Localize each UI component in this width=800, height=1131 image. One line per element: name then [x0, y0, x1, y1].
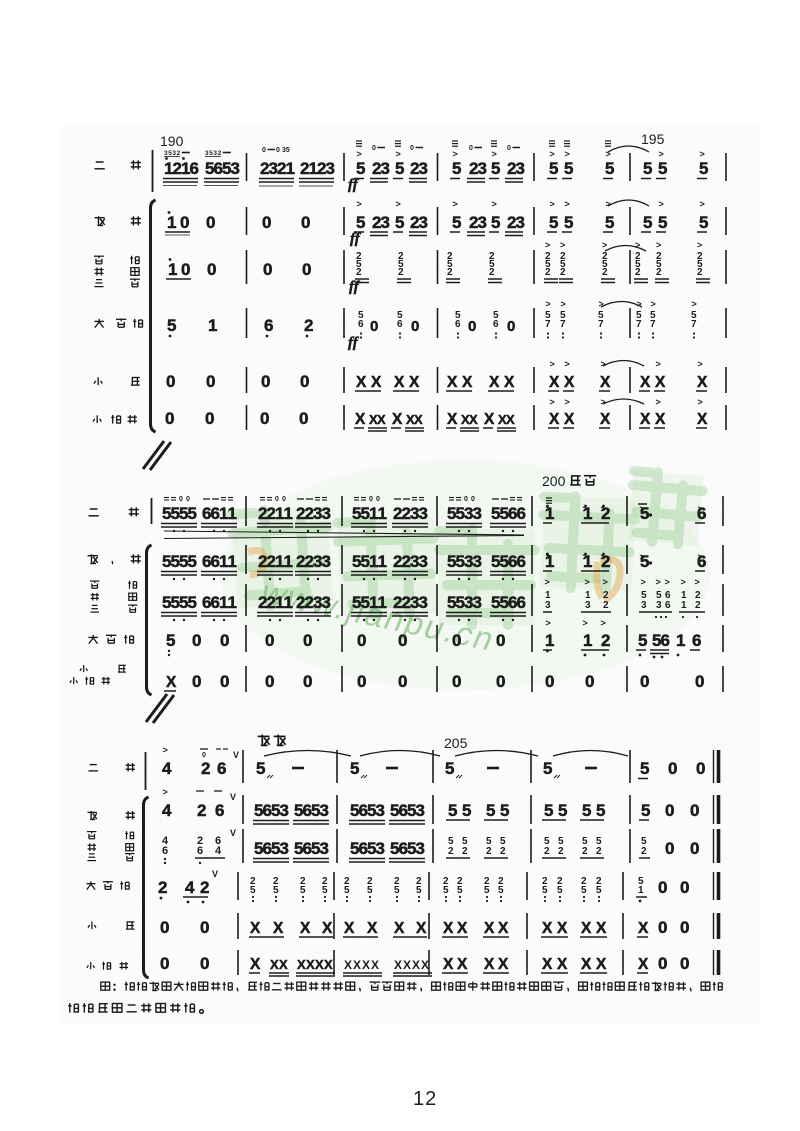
svg-text:>: >	[692, 299, 697, 309]
svg-text:5: 5	[395, 213, 404, 232]
svg-text:6: 6	[517, 593, 526, 612]
svg-text:X: X	[371, 958, 379, 972]
svg-text:>: >	[603, 577, 608, 587]
svg-text:2: 2	[641, 846, 647, 857]
svg-text:3: 3	[478, 213, 487, 232]
svg-text:2: 2	[398, 267, 404, 278]
svg-text:>: >	[601, 359, 606, 369]
svg-text:2: 2	[218, 150, 222, 157]
svg-text:4: 4	[162, 759, 172, 778]
svg-text:>: >	[357, 199, 362, 209]
svg-text:>: >	[637, 299, 642, 309]
svg-text:>: >	[585, 577, 590, 587]
svg-text:X: X	[638, 956, 649, 973]
svg-text:V: V	[230, 792, 236, 802]
svg-text:X: X	[489, 374, 500, 391]
svg-text:0: 0	[471, 496, 475, 503]
svg-text:0: 0	[464, 496, 468, 503]
svg-text:X: X	[564, 411, 575, 428]
svg-text:>: >	[698, 397, 703, 407]
svg-text:3: 3	[416, 801, 425, 820]
svg-text:5: 5	[699, 159, 708, 178]
svg-text:3: 3	[416, 839, 425, 858]
svg-text:5: 5	[582, 801, 591, 820]
svg-text:0: 0	[398, 631, 407, 650]
svg-text:1: 1	[583, 504, 592, 523]
svg-text:5: 5	[167, 316, 176, 335]
svg-text:X: X	[484, 411, 495, 428]
svg-text:X: X	[443, 956, 454, 973]
svg-text:0: 0	[303, 672, 312, 691]
svg-text:0: 0	[200, 918, 209, 937]
svg-text:X: X	[403, 958, 411, 972]
svg-text:0: 0	[260, 409, 269, 428]
svg-text:X: X	[270, 957, 279, 972]
svg-text:X: X	[416, 920, 427, 937]
svg-text:2: 2	[601, 552, 610, 571]
svg-text:0: 0	[262, 147, 266, 154]
svg-text:>: >	[697, 240, 702, 250]
svg-text:X: X	[447, 374, 458, 391]
svg-text:2: 2	[489, 267, 495, 278]
svg-text:2: 2	[462, 846, 468, 857]
svg-text:2: 2	[158, 878, 167, 897]
svg-text:3: 3	[326, 159, 335, 178]
svg-text:6: 6	[517, 552, 526, 571]
svg-text:0: 0	[263, 260, 272, 279]
svg-text:1: 1	[676, 631, 685, 650]
svg-text:3: 3	[322, 504, 331, 523]
svg-text:5: 5	[643, 213, 652, 232]
svg-text:X: X	[506, 412, 515, 427]
svg-text:>: >	[560, 240, 565, 250]
svg-text:1: 1	[681, 600, 687, 611]
svg-text:5: 5	[416, 885, 422, 896]
svg-text:X: X	[443, 920, 454, 937]
svg-text:1: 1	[228, 504, 237, 523]
svg-text:X: X	[367, 920, 378, 937]
svg-text:3: 3	[231, 159, 240, 178]
svg-text:>: >	[546, 618, 551, 628]
svg-text:>: >	[550, 397, 555, 407]
svg-text:7: 7	[545, 319, 551, 330]
svg-text:5: 5	[699, 213, 708, 232]
svg-text:X: X	[697, 374, 708, 391]
svg-text:3: 3	[478, 159, 487, 178]
svg-text:2: 2	[486, 846, 492, 857]
svg-text:2: 2	[635, 267, 641, 278]
svg-text:0: 0	[411, 318, 419, 335]
svg-text:X: X	[581, 956, 592, 973]
svg-text:>: >	[656, 240, 661, 250]
svg-text:1: 1	[545, 631, 554, 650]
svg-text:0: 0	[668, 759, 677, 778]
svg-text:35: 35	[282, 147, 290, 154]
svg-text:2: 2	[200, 878, 209, 897]
svg-text:1: 1	[378, 593, 387, 612]
svg-text:5: 5	[457, 885, 463, 896]
svg-text:2: 2	[500, 846, 506, 857]
svg-text:5: 5	[641, 801, 650, 820]
svg-text:X: X	[596, 920, 607, 937]
svg-text:5: 5	[356, 159, 365, 178]
svg-text:>: >	[546, 299, 551, 309]
svg-text:X: X	[356, 374, 367, 391]
svg-text:X: X	[392, 411, 403, 428]
svg-text:3: 3	[641, 600, 647, 611]
svg-text:X: X	[250, 956, 261, 973]
svg-text:6: 6	[264, 316, 273, 335]
svg-text:7: 7	[650, 319, 656, 330]
svg-text:1: 1	[284, 593, 293, 612]
svg-text:0: 0	[545, 672, 554, 691]
svg-text:0: 0	[680, 954, 689, 973]
svg-text:1: 1	[208, 316, 217, 335]
svg-text:5: 5	[350, 759, 359, 778]
svg-text:>: >	[656, 577, 661, 587]
svg-text:5: 5	[558, 801, 567, 820]
svg-text:0: 0	[265, 672, 274, 691]
svg-text:1: 1	[168, 260, 177, 279]
svg-text:0: 0	[180, 213, 189, 232]
svg-text:2: 2	[201, 759, 210, 778]
svg-text:0: 0	[690, 839, 699, 858]
svg-text:3: 3	[419, 213, 428, 232]
svg-text:6: 6	[692, 631, 701, 650]
svg-text:0: 0	[696, 759, 705, 778]
svg-text:X: X	[457, 956, 468, 973]
svg-text:5: 5	[542, 885, 548, 896]
svg-text:0: 0	[301, 213, 310, 232]
svg-text:0: 0	[275, 496, 279, 503]
svg-text:0: 0	[181, 260, 190, 279]
svg-text:X: X	[655, 411, 666, 428]
svg-text:5: 5	[356, 213, 365, 232]
svg-text:>: >	[565, 199, 570, 209]
svg-text:>: >	[599, 299, 604, 309]
svg-text:X: X	[457, 920, 468, 937]
svg-text:>: >	[561, 299, 566, 309]
svg-text:3: 3	[545, 600, 551, 611]
svg-text:0: 0	[265, 631, 274, 650]
svg-text:5: 5	[188, 552, 197, 571]
svg-text:2: 2	[558, 846, 564, 857]
svg-text:>: >	[550, 199, 555, 209]
svg-text:0: 0	[166, 372, 175, 391]
svg-text:>: >	[492, 149, 497, 159]
svg-text:X: X	[484, 920, 495, 937]
svg-text:5: 5	[491, 159, 500, 178]
svg-text:>: >	[656, 397, 661, 407]
svg-text:3: 3	[381, 213, 390, 232]
svg-text:6: 6	[665, 600, 671, 611]
svg-text:0: 0	[200, 954, 209, 973]
svg-text:0: 0	[192, 631, 201, 650]
svg-text:3: 3	[656, 600, 662, 611]
svg-text:5: 5	[549, 159, 558, 178]
svg-text:X: X	[279, 957, 288, 972]
svg-text:6: 6	[215, 801, 224, 820]
svg-text:1: 1	[167, 213, 176, 232]
svg-text:5: 5	[300, 885, 306, 896]
svg-text:>: >	[695, 577, 700, 587]
svg-text:3: 3	[419, 552, 428, 571]
svg-text:2: 2	[656, 267, 662, 278]
svg-text:5: 5	[640, 504, 649, 523]
svg-text:>: >	[545, 240, 550, 250]
svg-text:0: 0	[496, 631, 505, 650]
svg-text:>: >	[550, 149, 555, 159]
svg-text:0: 0	[585, 672, 594, 691]
svg-text:5: 5	[564, 159, 573, 178]
svg-text:5: 5	[557, 885, 563, 896]
svg-text:>: >	[606, 199, 611, 209]
svg-text:2: 2	[560, 267, 566, 278]
svg-text:190: 190	[160, 133, 184, 149]
svg-text:X: X	[462, 374, 473, 391]
svg-text:X: X	[655, 374, 666, 391]
svg-text:6: 6	[455, 319, 461, 330]
svg-text:X: X	[581, 920, 592, 937]
svg-text:0: 0	[680, 878, 689, 897]
svg-text:>: >	[681, 577, 686, 587]
svg-text:0: 0	[262, 213, 271, 232]
svg-text:0: 0	[303, 631, 312, 650]
svg-text:X: X	[697, 411, 708, 428]
svg-text:>: >	[492, 199, 497, 209]
svg-text:>: >	[357, 149, 362, 159]
svg-text:3: 3	[516, 159, 525, 178]
svg-text:12: 12	[413, 1088, 437, 1110]
svg-text:5: 5	[605, 159, 614, 178]
svg-text:0: 0	[160, 918, 169, 937]
svg-text:X: X	[306, 957, 315, 972]
svg-text:>: >	[698, 359, 703, 369]
svg-text:0: 0	[507, 145, 511, 152]
svg-text:X: X	[300, 920, 311, 937]
svg-text:5: 5	[486, 801, 495, 820]
svg-text:3: 3	[280, 839, 289, 858]
svg-text:1: 1	[583, 631, 592, 650]
svg-text:0: 0	[496, 672, 505, 691]
svg-text:>: >	[656, 359, 661, 369]
svg-text:3: 3	[473, 504, 482, 523]
svg-text:4: 4	[162, 801, 172, 820]
svg-text:6: 6	[190, 159, 199, 178]
svg-text:0: 0	[695, 672, 704, 691]
svg-text:X: X	[324, 957, 333, 972]
svg-text:>: >	[700, 199, 705, 209]
svg-text:5: 5	[322, 885, 328, 896]
svg-text:0: 0	[469, 145, 473, 152]
svg-text:205: 205	[444, 735, 468, 751]
svg-text:X: X	[394, 958, 402, 972]
svg-text:>: >	[565, 397, 570, 407]
svg-text:5: 5	[640, 759, 649, 778]
svg-text:>: >	[601, 397, 606, 407]
svg-text:6: 6	[358, 319, 364, 330]
svg-text:0: 0	[665, 839, 674, 858]
svg-text:>: >	[651, 299, 656, 309]
svg-text:2: 2	[582, 846, 588, 857]
svg-text:3: 3	[585, 600, 591, 611]
svg-text:5: 5	[462, 801, 471, 820]
svg-text:5: 5	[498, 885, 504, 896]
svg-text:>: >	[583, 618, 588, 628]
svg-text:0: 0	[372, 145, 376, 152]
svg-text:>: >	[700, 149, 705, 159]
svg-text:2: 2	[603, 600, 609, 611]
svg-text:0: 0	[369, 496, 373, 503]
svg-text:X: X	[166, 674, 177, 691]
svg-text:0: 0	[165, 409, 174, 428]
svg-text:0: 0	[658, 918, 667, 937]
svg-text:5: 5	[188, 593, 197, 612]
svg-text:200: 200	[542, 473, 566, 489]
svg-text:X: X	[421, 958, 429, 972]
svg-text:X: X	[414, 412, 423, 427]
svg-text:0: 0	[452, 672, 461, 691]
svg-text:0: 0	[202, 752, 206, 759]
svg-text:5: 5	[395, 159, 404, 178]
svg-text:0: 0	[186, 496, 190, 503]
svg-text:X: X	[297, 957, 306, 972]
svg-text:5: 5	[549, 213, 558, 232]
svg-text:2: 2	[602, 267, 608, 278]
svg-text:X: X	[484, 956, 495, 973]
svg-text:5: 5	[643, 159, 652, 178]
svg-text:>: >	[453, 199, 458, 209]
svg-text:6: 6	[517, 504, 526, 523]
svg-text:6: 6	[661, 631, 670, 650]
svg-text:7: 7	[598, 319, 604, 330]
svg-text:6: 6	[197, 845, 203, 857]
svg-text:0: 0	[658, 954, 667, 973]
svg-text:7: 7	[560, 319, 566, 330]
svg-text:5: 5	[596, 801, 605, 820]
svg-text:3: 3	[280, 801, 289, 820]
svg-text:X: X	[557, 920, 568, 937]
svg-text:X: X	[498, 956, 509, 973]
svg-text:0: 0	[410, 145, 414, 152]
svg-text:5: 5	[658, 213, 667, 232]
svg-text:0: 0	[370, 318, 378, 335]
svg-text:5: 5	[448, 801, 457, 820]
svg-text:0: 0	[299, 409, 308, 428]
svg-text:X: X	[549, 374, 560, 391]
svg-text:0: 0	[690, 801, 699, 820]
svg-text:3: 3	[322, 552, 331, 571]
svg-text:0: 0	[658, 878, 667, 897]
svg-text:1: 1	[378, 504, 387, 523]
svg-text:3: 3	[381, 159, 390, 178]
svg-text:5: 5	[445, 759, 454, 778]
svg-text:5: 5	[581, 885, 587, 896]
svg-text:X: X	[377, 412, 386, 427]
svg-text:0: 0	[398, 672, 407, 691]
svg-text:>: >	[602, 240, 607, 250]
svg-text:0: 0	[680, 918, 689, 937]
svg-text:0: 0	[282, 496, 286, 503]
svg-text:3: 3	[376, 801, 385, 820]
svg-text:4: 4	[185, 878, 195, 897]
svg-text:X: X	[549, 411, 560, 428]
svg-text:X: X	[409, 374, 420, 391]
svg-text:0: 0	[665, 801, 674, 820]
svg-text:3: 3	[473, 552, 482, 571]
svg-text:X: X	[394, 920, 405, 937]
svg-text:X: X	[640, 374, 651, 391]
svg-text:0: 0	[276, 147, 280, 154]
svg-text:3: 3	[473, 593, 482, 612]
svg-text:5: 5	[256, 759, 265, 778]
svg-text:>: >	[453, 149, 458, 159]
svg-text:0: 0	[207, 260, 216, 279]
svg-text:X: X	[638, 920, 649, 937]
svg-text:>: >	[659, 149, 664, 159]
svg-text:5: 5	[452, 159, 461, 178]
svg-text:2: 2	[697, 267, 703, 278]
svg-text:0: 0	[220, 672, 229, 691]
svg-text:X: X	[353, 958, 361, 972]
svg-text:X: X	[469, 412, 478, 427]
svg-text:X: X	[344, 958, 352, 972]
svg-text:0: 0	[452, 631, 461, 650]
svg-text:5: 5	[491, 213, 500, 232]
svg-text:>: >	[396, 199, 401, 209]
svg-text:X: X	[394, 374, 405, 391]
svg-text:X: X	[273, 920, 284, 937]
svg-text:3: 3	[419, 593, 428, 612]
svg-text:X: X	[344, 920, 355, 937]
svg-text:1: 1	[286, 159, 295, 178]
svg-text:1: 1	[284, 504, 293, 523]
svg-text:5: 5	[484, 885, 490, 896]
svg-text:1: 1	[638, 885, 644, 896]
svg-text:X: X	[542, 956, 553, 973]
svg-text:2: 2	[447, 267, 453, 278]
svg-text:2: 2	[177, 150, 181, 157]
svg-text:>: >	[163, 745, 168, 755]
svg-text:0: 0	[300, 372, 309, 391]
svg-text:5: 5	[564, 213, 573, 232]
svg-text:0: 0	[357, 672, 366, 691]
svg-text:V: V	[233, 750, 239, 760]
svg-text:>: >	[659, 199, 664, 209]
svg-text:0: 0	[468, 318, 476, 335]
svg-text:>: >	[550, 359, 555, 369]
svg-text:X: X	[498, 920, 509, 937]
svg-text:0: 0	[179, 496, 183, 503]
svg-text:1: 1	[378, 552, 387, 571]
svg-text:4: 4	[215, 845, 222, 857]
svg-text:X: X	[564, 374, 575, 391]
svg-text:>: >	[163, 787, 168, 797]
svg-text:0: 0	[205, 409, 214, 428]
svg-text:2: 2	[596, 846, 602, 857]
svg-text:X: X	[447, 411, 458, 428]
svg-text:2: 2	[197, 801, 206, 820]
svg-text:6: 6	[162, 845, 168, 857]
svg-text:2: 2	[601, 631, 610, 650]
svg-text:5: 5	[188, 504, 197, 523]
svg-text:3: 3	[516, 213, 525, 232]
svg-text:5: 5	[452, 213, 461, 232]
svg-text:2: 2	[545, 267, 551, 278]
svg-text:0: 0	[206, 213, 215, 232]
svg-text:5: 5	[605, 213, 614, 232]
svg-text:3: 3	[320, 801, 329, 820]
